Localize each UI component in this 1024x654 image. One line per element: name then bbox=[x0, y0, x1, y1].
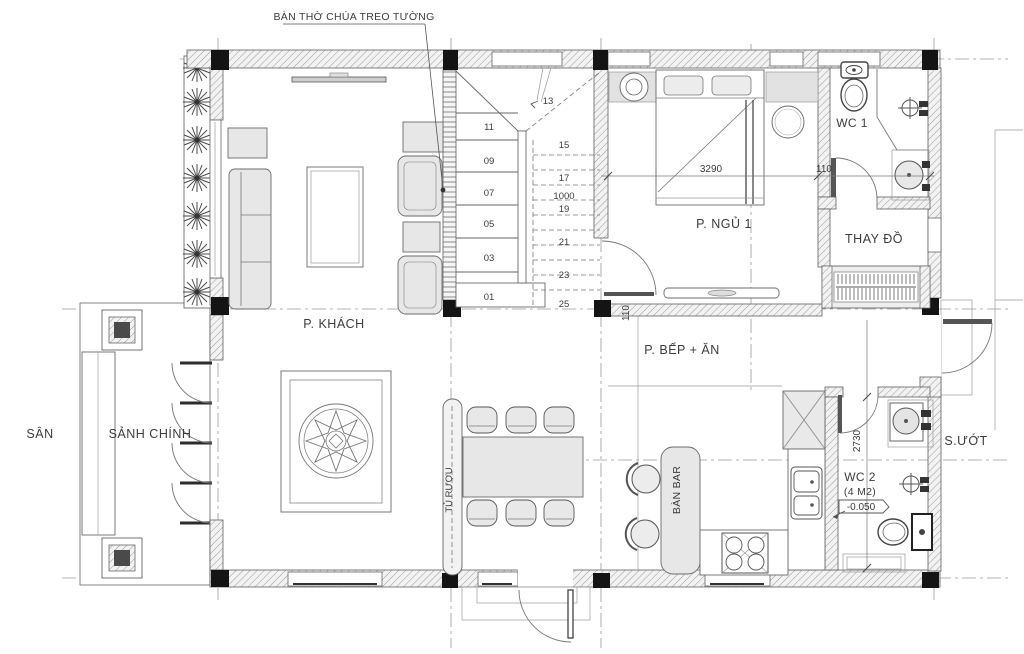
stair-step-number: 05 bbox=[484, 219, 495, 230]
wc1-fixtures bbox=[831, 62, 930, 200]
faucet-icon bbox=[899, 473, 929, 495]
tv bbox=[292, 77, 386, 82]
coffee-table bbox=[307, 167, 363, 267]
entrance-door bbox=[462, 587, 590, 642]
wine-cabinet-label: TỦ RƯỢU bbox=[443, 467, 455, 512]
stair-step-number: 03 bbox=[484, 253, 495, 264]
main-hall-porch bbox=[80, 303, 212, 585]
kitchen-dining-furniture bbox=[443, 391, 825, 575]
room-label-yard: SÂN bbox=[26, 426, 53, 441]
living-room-furniture bbox=[228, 73, 443, 512]
stair-step-number: 25 bbox=[559, 299, 570, 310]
room-label-wc2: WC 2 bbox=[844, 470, 876, 484]
bar-counter bbox=[626, 447, 700, 574]
wet-area-door bbox=[942, 319, 992, 373]
stair-step-number: 07 bbox=[484, 188, 495, 199]
room-label-living: P. KHÁCH bbox=[303, 316, 364, 331]
room-label-bedroom1: P. NGỦ 1 bbox=[696, 216, 752, 231]
room-label-dressing: THAY ĐỒ bbox=[845, 231, 903, 246]
stair-step-number: 11 bbox=[484, 122, 494, 133]
dining-table bbox=[463, 437, 583, 497]
room-label-wc1: WC 1 bbox=[836, 116, 868, 130]
bed bbox=[656, 70, 764, 205]
dining-set bbox=[463, 407, 583, 526]
stair-step-number: 17 bbox=[559, 173, 570, 184]
stair-step-number: 19 bbox=[559, 204, 570, 215]
floor-plan-page: 01 03 05 07 09 11 13 15 17 19 21 23 25 1… bbox=[0, 0, 1024, 654]
stair-step-number: 09 bbox=[484, 156, 495, 167]
stair-step-number: 23 bbox=[559, 270, 570, 281]
rug bbox=[281, 371, 391, 512]
nightstand bbox=[766, 72, 818, 102]
bar-label: BÀN BAR bbox=[670, 466, 683, 514]
wc2-door-leaf bbox=[838, 395, 842, 433]
stair-step-number: 21 bbox=[559, 237, 570, 248]
stove bbox=[722, 533, 768, 573]
floor-plan: 01 03 05 07 09 11 13 15 17 19 21 23 25 1… bbox=[0, 0, 1024, 654]
kitchen-sink bbox=[791, 467, 822, 519]
wc2-level-label: -0.050 bbox=[847, 502, 876, 513]
wardrobe bbox=[822, 266, 930, 308]
porch-column bbox=[102, 538, 142, 578]
faucet-icon bbox=[898, 97, 928, 119]
kitchen-counter bbox=[700, 391, 825, 575]
side-table bbox=[228, 128, 267, 158]
lamp bbox=[620, 73, 648, 101]
stair-step-number: 15 bbox=[559, 140, 570, 151]
wc2-toilet bbox=[878, 514, 932, 550]
wc2-area-label: (4 M2) bbox=[844, 486, 876, 498]
dimension-label: 110 bbox=[816, 164, 832, 175]
staircase: 01 03 05 07 09 11 13 15 17 19 21 23 25 1… bbox=[456, 68, 600, 310]
room-label-hall: SẢNH CHÍNH bbox=[109, 426, 192, 441]
wet-yard-outline bbox=[941, 130, 1023, 430]
dimension-label: 2730 bbox=[852, 429, 863, 452]
planter-strip bbox=[183, 54, 211, 308]
dimension-label: 110 bbox=[621, 305, 632, 321]
side-table bbox=[403, 222, 440, 252]
sofa bbox=[229, 169, 271, 309]
round-table bbox=[772, 106, 804, 138]
stair-step-number: 01 bbox=[484, 292, 495, 303]
washing-machine bbox=[888, 400, 933, 447]
bedroom-door bbox=[602, 241, 656, 296]
room-label-kitchen-dining: P. BẾP + ĂN bbox=[644, 342, 720, 357]
stair-step-number: 13 bbox=[543, 96, 554, 107]
altar-label: BÀN THỜ CHÚA TREO TƯỜNG bbox=[273, 10, 434, 23]
porch-column bbox=[102, 310, 142, 350]
dimension-label: 3290 bbox=[700, 164, 723, 175]
room-label-wet-area: S.ƯỚT bbox=[944, 433, 987, 448]
stair-width-dim: 1000 bbox=[553, 191, 574, 202]
bedroom-furniture bbox=[609, 70, 818, 298]
